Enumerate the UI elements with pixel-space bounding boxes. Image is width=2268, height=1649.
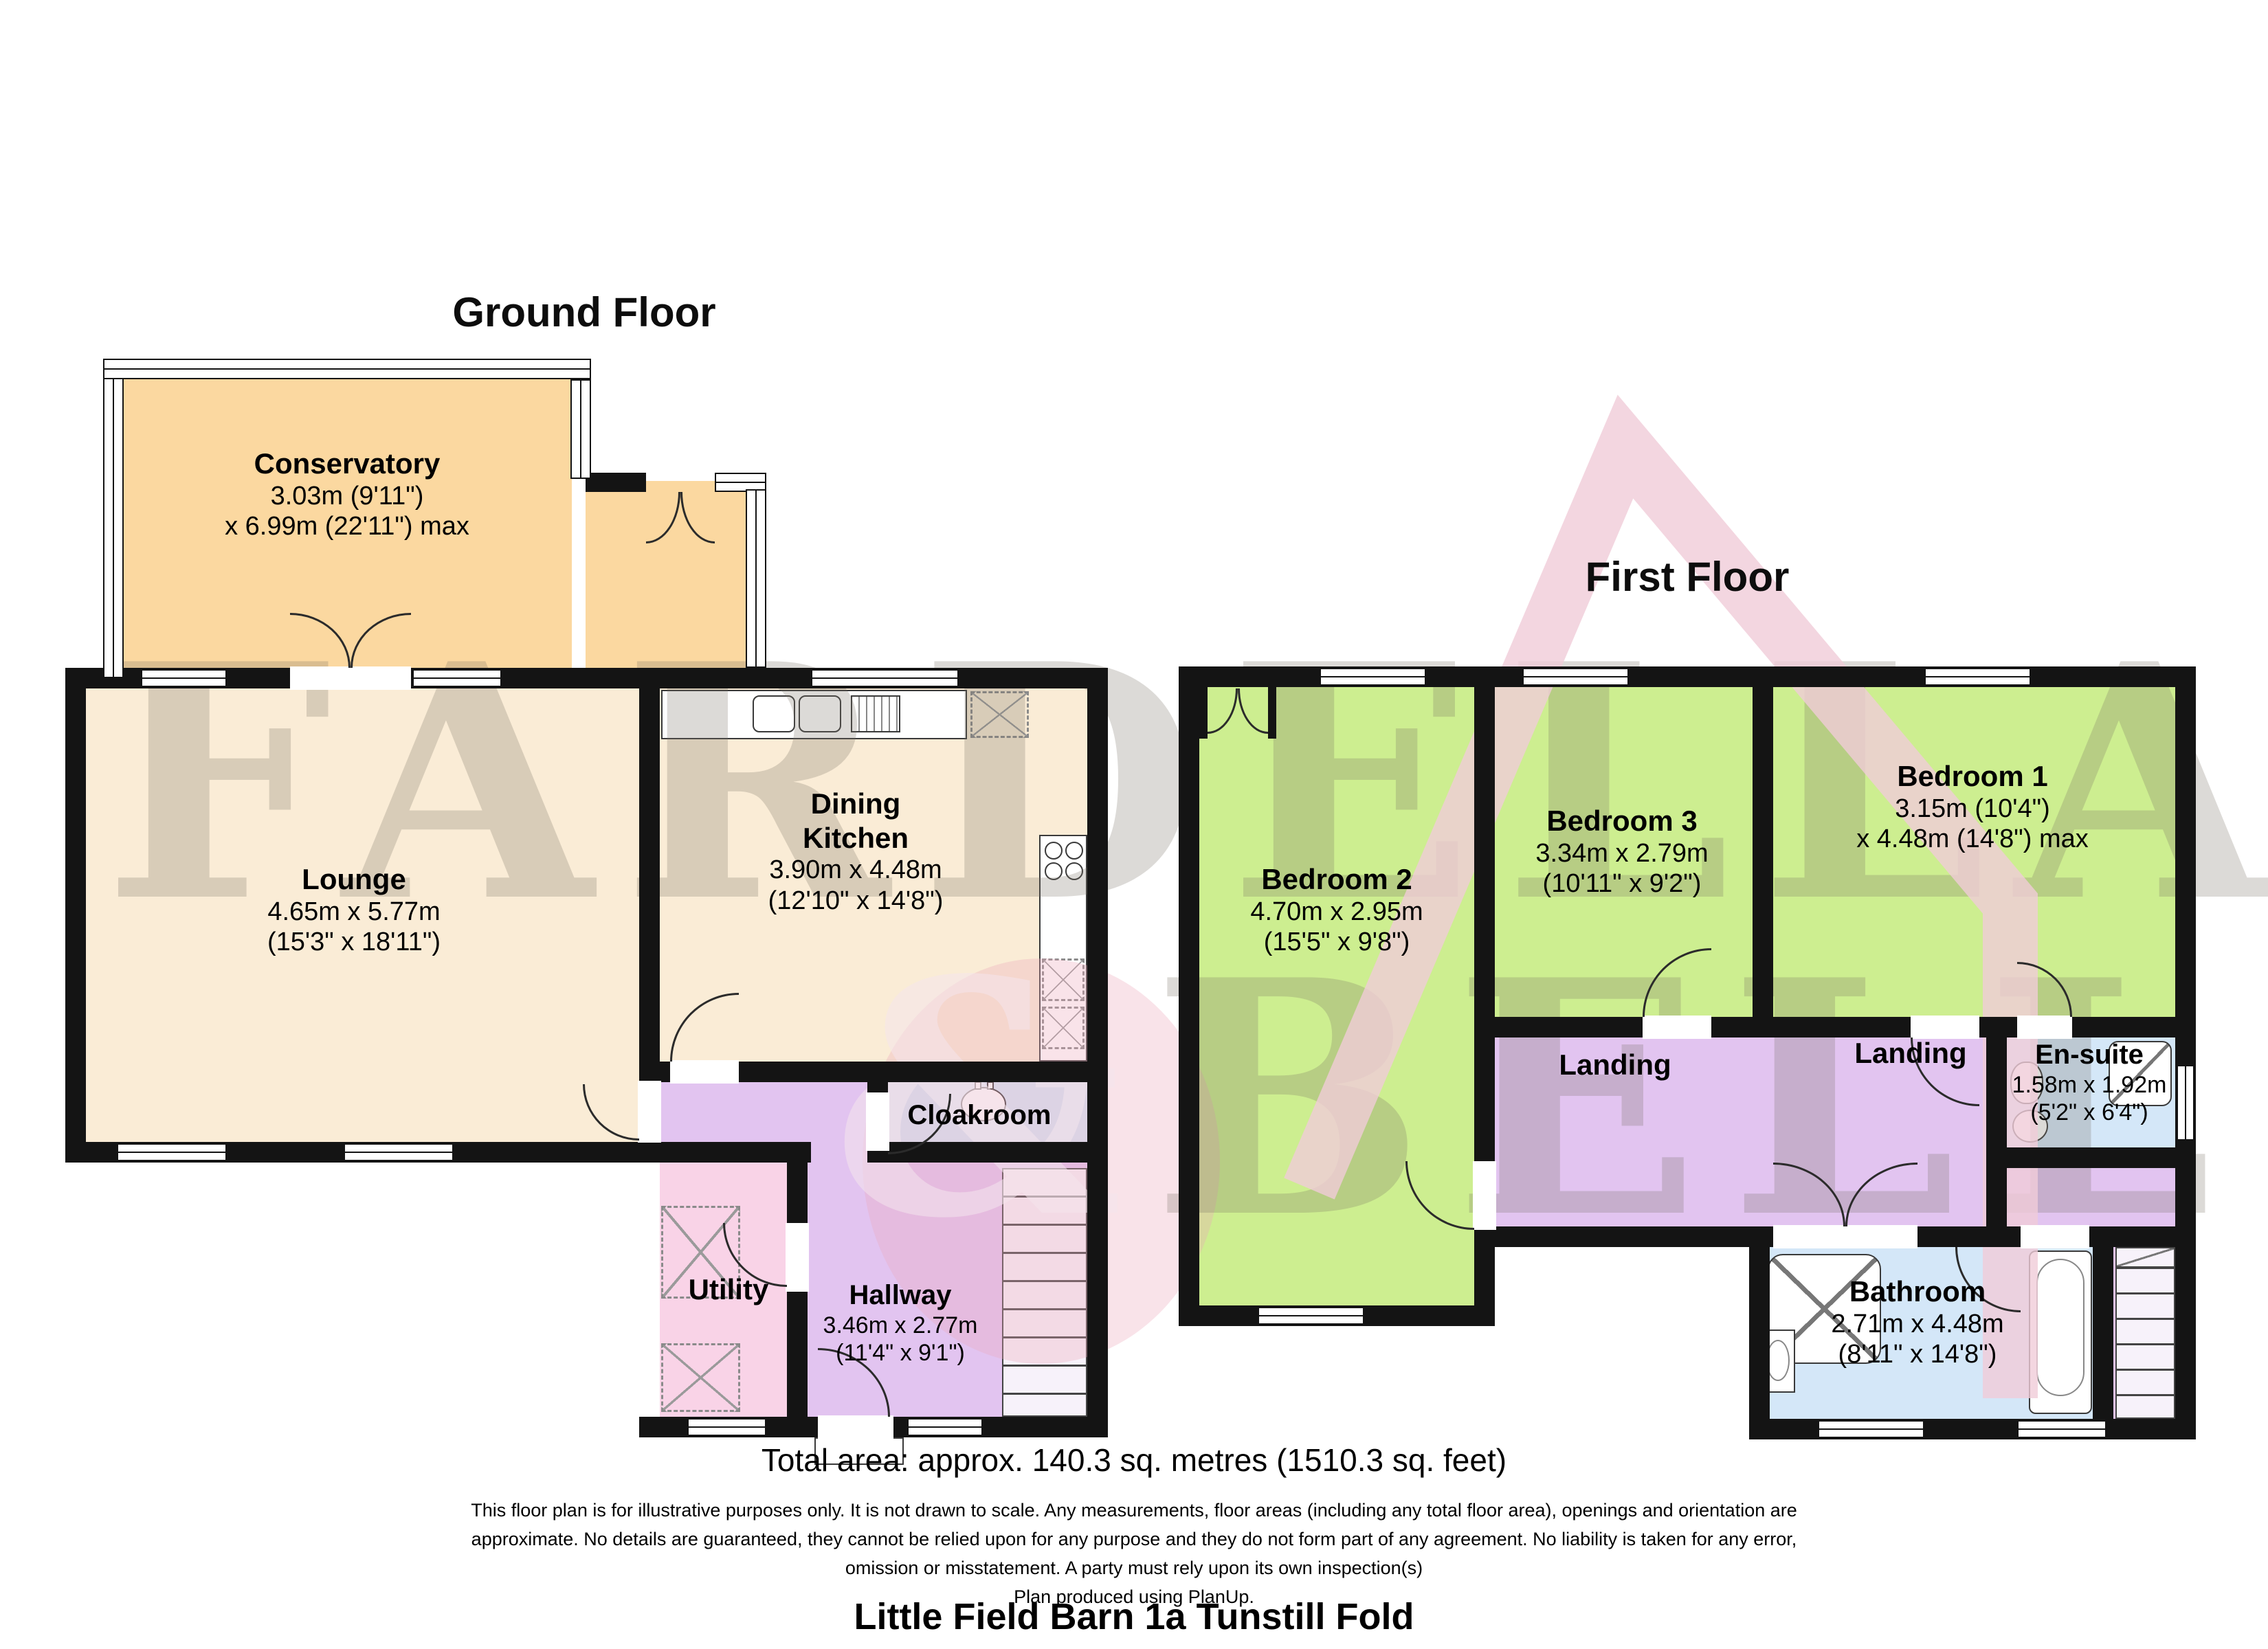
window [141,669,227,687]
room-dims: 2.71m x 4.48m [1780,1309,2055,1340]
disclaimer-line: This floor plan is for illustrative purp… [206,1496,2062,1525]
room-dims: (5'2" x 6'4") [1959,1099,2220,1126]
wall [65,668,86,1163]
label-bathroom: Bathroom 2.71m x 4.48m (8'11" x 14'8") [1780,1275,2055,1370]
wall [1986,1147,2196,1168]
room-dims: 3.34m x 2.79m [1471,838,1773,869]
label-bedroom2: Bedroom 2 4.70m x 2.95m (15'5" x 9'8") [1196,862,1478,958]
room-dims: (15'5" x 9'8") [1196,927,1478,958]
room-dims: (12'10" x 14'8") [684,886,1027,917]
room-dims: (15'3" x 18'11") [148,927,560,958]
wall [1474,1226,1495,1326]
room-name: Bathroom [1780,1275,2055,1309]
wall [1087,688,1108,1437]
door-opening [818,1415,893,1439]
room-dims: 3.46m x 2.77m [797,1312,1003,1339]
label-bedroom1: Bedroom 1 3.15m (10'4") x 4.48m (14'8") … [1801,759,2144,855]
label-utility: Utility [646,1272,811,1307]
wall [1268,687,1276,739]
wall [1749,1419,2196,1439]
window [103,359,591,379]
label-cloakroom: Cloakroom [873,1099,1086,1132]
label-dining-kitchen: Dining Kitchen 3.90m x 4.48m (12'10" x 1… [684,787,1027,917]
door-opening [1911,1016,1979,1039]
window [2017,1420,2106,1438]
room-name: Lounge [148,862,560,897]
window [1258,1307,1364,1325]
door-opening [1473,1161,1496,1230]
ground-floor-title: Ground Floor [412,289,756,336]
wall [639,1142,811,1163]
room-dims: 4.65m x 5.77m [148,897,560,928]
window [570,379,591,479]
room-dims: x 6.99m (22'11") max [137,511,557,542]
first-floor-title: First Floor [1515,553,1859,601]
wall [1749,1226,1770,1439]
window [103,359,124,678]
room-dims: 1.58m x 1.92m [1959,1071,2220,1099]
label-landing-left: Landing [1512,1048,1718,1082]
door-opening [638,1081,661,1143]
staircase [2115,1268,2175,1419]
disclaimer-line: approximate. No details are guaranteed, … [206,1525,2062,1554]
room-name: Landing [1808,1036,2014,1070]
window [344,1143,454,1161]
wall [2093,1247,2113,1419]
window [1818,1420,1924,1438]
room-name: Hallway [797,1279,1003,1312]
room-name: Landing [1512,1048,1718,1082]
wall [1199,687,1208,739]
total-area-text: Total area: approx. 140.3 sq. metres (15… [447,1442,1821,1479]
window [412,669,502,687]
room-dims: (8'11" x 14'8") [1780,1339,2055,1370]
room-dims: 4.70m x 2.95m [1196,897,1478,928]
floorplan-page: { "colors": { "conservatory_orange": "#f… [0,0,2268,1649]
label-lounge: Lounge 4.65m x 5.77m (15'3" x 18'11") [148,862,560,958]
disclaimer-text: This floor plan is for illustrative purp… [206,1496,2062,1611]
room-name: Dining [684,787,1027,821]
label-landing-right: Landing [1808,1036,2014,1070]
window [1924,668,2031,686]
door-opening [670,1060,739,1084]
room-name: Bedroom 3 [1471,804,1773,838]
room-dims: (11'4" x 9'1") [797,1339,1003,1367]
room-name: Bedroom 1 [1801,759,2144,794]
room-name: Conservatory [137,447,557,481]
door-opening [2021,1225,2089,1248]
wall [1179,666,1199,1326]
disclaimer-line: omission or misstatement. A party must r… [206,1554,2062,1583]
window [1320,668,1426,686]
window [746,489,766,668]
room-name: Kitchen [684,821,1027,855]
utility-unit [661,1343,740,1412]
window [687,1418,766,1436]
window [811,669,959,687]
room-dims: 3.03m (9'11") [137,481,557,512]
label-hallway: Hallway 3.46m x 2.77m (11'4" x 9'1") [797,1279,1003,1367]
door-opening [1773,1225,1917,1248]
room-dims: (10'11" x 9'2") [1471,868,1773,899]
room-dims: x 4.48m (14'8") max [1801,824,2144,855]
room-name: Cloakroom [873,1099,1086,1132]
door-opening [2017,1016,2072,1039]
room-name: Utility [646,1272,811,1307]
property-title: Little Field Barn 1a Tunstill Fold [447,1595,1821,1638]
label-bedroom3: Bedroom 3 3.34m x 2.79m (10'11" x 9'2") [1471,804,1773,899]
window [907,1418,983,1436]
room-dims: 3.90m x 4.48m [684,855,1027,886]
label-conservatory: Conservatory 3.03m (9'11") x 6.99m (22'1… [137,447,557,542]
room-name: Bedroom 2 [1196,862,1478,897]
wall [1474,1017,2196,1037]
door-opening [1643,1016,1711,1039]
room-dims: 3.15m (10'4") [1801,794,2144,824]
window [1522,668,1629,686]
window [117,1143,227,1161]
wall [586,473,646,492]
door-opening [290,666,411,690]
